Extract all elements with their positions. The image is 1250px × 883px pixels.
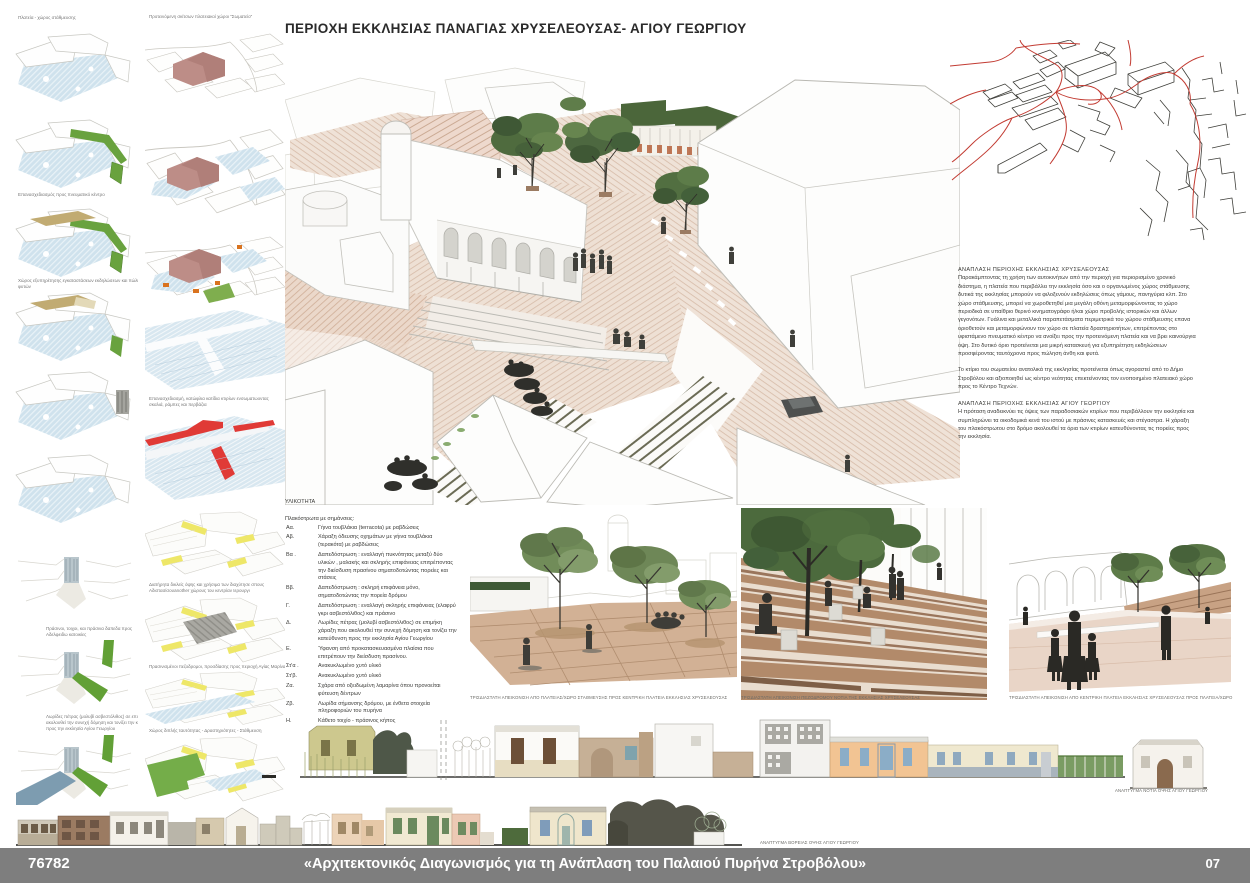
svg-text:Πρασινισμένοι πεζοδρομοι, προσ: Πρασινισμένοι πεζοδρομοι, προσδίασης προ… bbox=[149, 663, 285, 669]
svg-text:Χώρος διπλής ταυτότητας - Δρασ: Χώρος διπλής ταυτότητας - Δραστηριότητες… bbox=[149, 727, 262, 733]
svg-text:Επανασχεδιασμός προς πνευματικ: Επανασχεδιασμός προς πνευματικό κέντρο bbox=[18, 191, 105, 197]
svg-text:σκαλιά, ράμπες και περβάζ: σκαλιά, ράμπες και περβάζια bbox=[149, 401, 207, 407]
svg-text:Λωρίδες πέτρας (μολυβί ασβεστό: Λωρίδες πέτρας (μολυβί ασβεστόλιθος) σε … bbox=[46, 713, 138, 719]
svg-text:Διατήρητα δικλείς όψης και χρή: Διατήρητα δικλείς όψης και χρήσιμα των δ… bbox=[149, 581, 265, 587]
svg-text:Επανασχεδιασμή, κατώφλια κατίδ: Επανασχεδιασμή, κατώφλια κατίδια κτιρίων… bbox=[149, 395, 270, 401]
svg-text:Αδιστασίσουanother χώρους του: Αδιστασίσουanother χώρους του κεντρίαν Ι… bbox=[149, 587, 250, 593]
svg-text:Αδελφειδω κατοικίες: Αδελφειδω κατοικίες bbox=[46, 632, 87, 637]
svg-text:Πράσινοι, τοιχοι, και πράσινα: Πράσινοι, τοιχοι, και πράσινα δαπεδα προ… bbox=[46, 625, 133, 631]
svg-text:προς την εκκλησία Αγίου Γεωργί: προς την εκκλησία Αγίου Γεωργίου bbox=[46, 726, 116, 731]
svg-text:ακολουθεί την συνεχή: ακολουθεί την συνεχή δόμηση και τονίζει … bbox=[46, 719, 138, 725]
svg-text:Προτεινόμενη σκίτσων πλατειακο: Προτεινόμενη σκίτσων πλατειακοί χώροι "Σ… bbox=[149, 13, 253, 19]
svg-text:φυτών: φυτών bbox=[18, 283, 32, 289]
svg-text:Χώρος εξυπηρέτησης εγκαταστάσε: Χώρος εξυπηρέτησης εγκαταστάσεων εκδηλώσ… bbox=[18, 277, 138, 283]
svg-text:Πλατεία - χώρος στάθμευσης: Πλατεία - χώρος στάθμευσης bbox=[18, 14, 77, 20]
